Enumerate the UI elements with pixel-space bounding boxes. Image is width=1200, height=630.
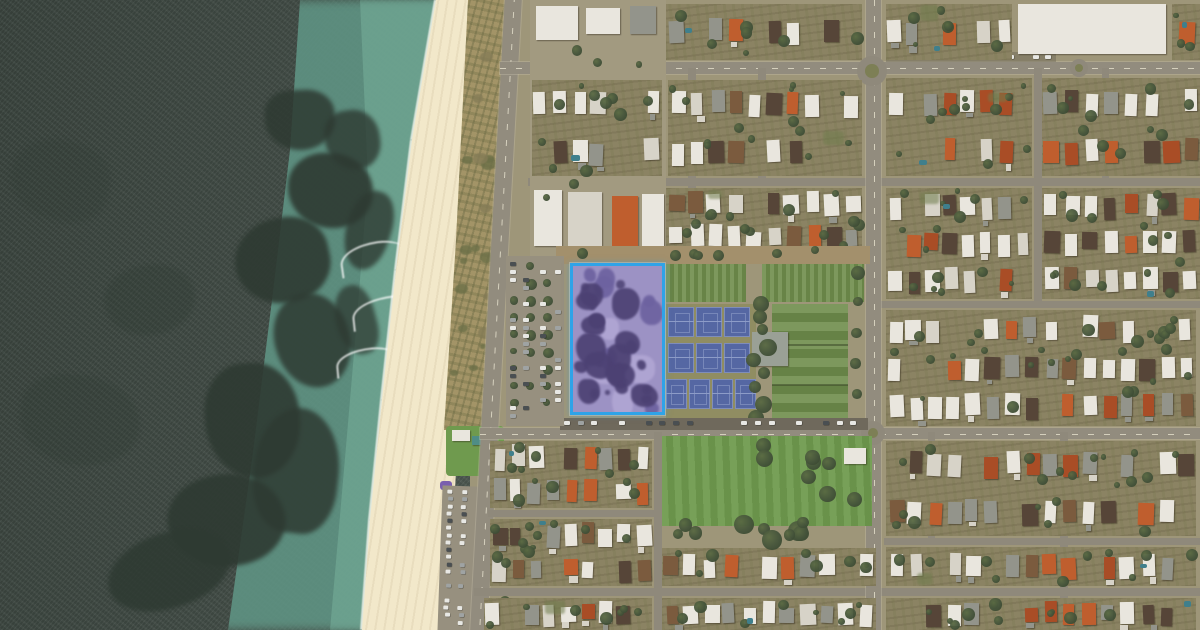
parcel-tree-canopy xyxy=(597,363,601,367)
parcel-tree-canopy xyxy=(589,313,604,328)
tree xyxy=(756,450,773,467)
park-shed-roof xyxy=(844,448,866,464)
parcel-tree-canopy xyxy=(581,283,589,291)
parcel-tree-canopy xyxy=(640,299,663,325)
tree xyxy=(819,486,835,502)
tree xyxy=(797,517,809,529)
tree xyxy=(734,515,753,534)
parcel-tree-canopy xyxy=(590,389,599,398)
tree xyxy=(762,530,781,549)
tree xyxy=(847,492,862,507)
parcel-tree-canopy xyxy=(576,333,606,366)
parcel-tree-canopy xyxy=(590,305,595,310)
highlighted-parcel-overlay xyxy=(570,263,665,415)
parcel-tree-canopy xyxy=(598,268,615,288)
tree xyxy=(822,457,835,470)
satellite-map[interactable] xyxy=(0,0,1200,630)
parcel-tree-canopy xyxy=(612,288,640,320)
tree xyxy=(784,529,796,541)
parcel-tree-canopy xyxy=(584,268,597,282)
parcel-tree-canopy xyxy=(616,280,624,288)
tree xyxy=(805,450,819,464)
tree xyxy=(801,470,816,485)
parcel-tree-canopy xyxy=(605,390,609,394)
